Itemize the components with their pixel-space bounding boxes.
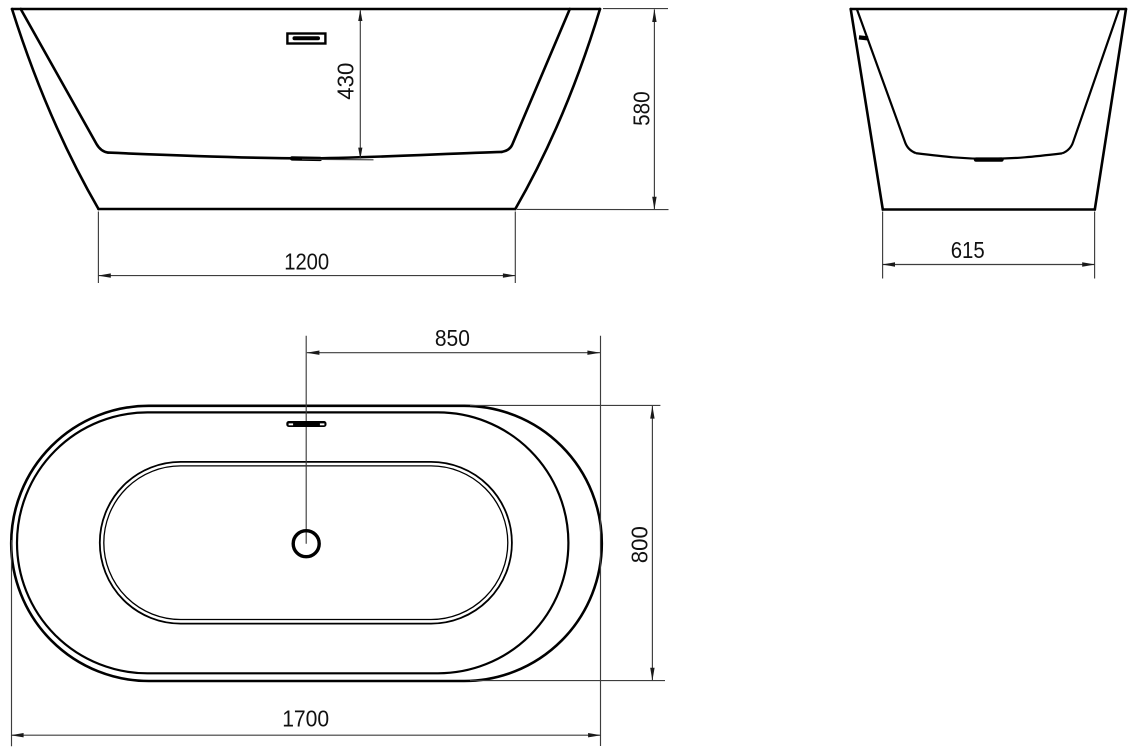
svg-text:850: 850 (435, 325, 470, 351)
svg-text:615: 615 (951, 237, 985, 263)
svg-text:430: 430 (333, 63, 359, 100)
svg-text:800: 800 (626, 526, 652, 563)
svg-text:580: 580 (629, 91, 655, 126)
svg-text:1200: 1200 (284, 249, 329, 275)
svg-text:1700: 1700 (282, 706, 329, 732)
